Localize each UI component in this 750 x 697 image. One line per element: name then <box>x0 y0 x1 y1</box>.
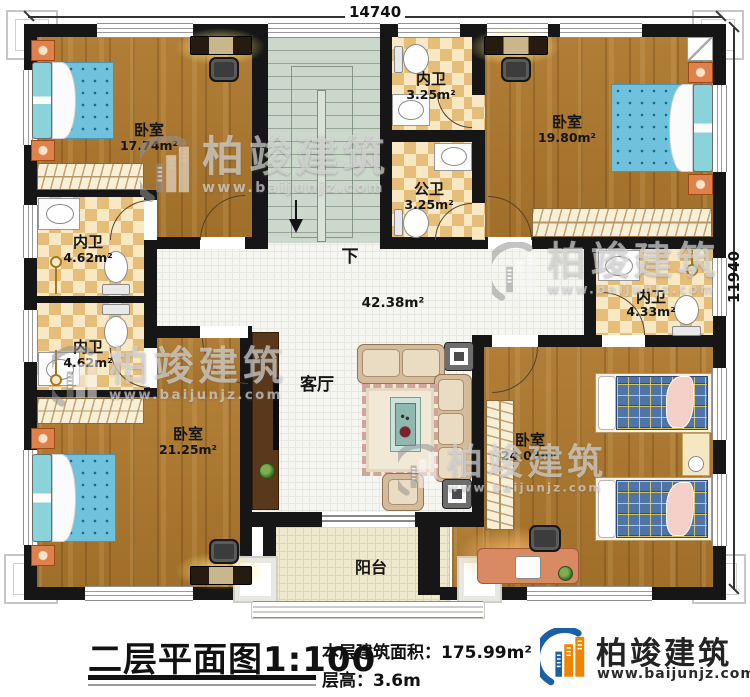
window <box>398 23 460 38</box>
wall-hall-bottom-left <box>252 512 322 527</box>
window <box>712 474 727 546</box>
stair-down-label: 下 <box>342 242 359 267</box>
building-area-value: 175.99m² <box>441 643 532 663</box>
closet-bedroom-bl <box>37 398 144 424</box>
bed-headboard <box>32 454 52 542</box>
window <box>712 85 727 172</box>
desk-plant <box>558 566 573 581</box>
dimension-right-value: 11940 <box>725 245 743 309</box>
wall-h <box>472 335 492 347</box>
shower-corner <box>687 37 713 61</box>
desk <box>190 566 252 585</box>
wall-bath-divider <box>392 130 472 142</box>
wall-h <box>24 390 144 397</box>
building-area-label: 本层建筑面积： <box>322 643 441 663</box>
desk-chair <box>529 525 561 552</box>
desk <box>190 36 252 55</box>
room-label: 内卫 <box>416 68 446 89</box>
wall-bedroom-br-left <box>472 347 484 527</box>
door-gap <box>602 335 645 347</box>
desk-chair <box>209 57 239 82</box>
dimension-line-right <box>733 28 735 590</box>
sink-basin <box>398 100 424 120</box>
brand-logo-icon <box>540 628 590 690</box>
stair-center-rail <box>317 90 326 242</box>
wall-h <box>245 237 252 249</box>
desk-chair <box>209 539 239 564</box>
wall-balcony-right-stub <box>418 527 440 595</box>
room-area: 24.08m² <box>501 448 559 463</box>
room-label: 内卫 <box>73 336 103 357</box>
end-table <box>444 342 474 371</box>
shower-hose <box>691 250 693 266</box>
room-label: 内卫 <box>73 231 103 252</box>
wall-h <box>532 237 713 249</box>
brand-url: www.baijunjz.com <box>597 666 750 682</box>
plant <box>259 463 275 479</box>
nightstand <box>688 174 713 195</box>
nightstand-lamp <box>688 456 704 472</box>
title-underline-thin <box>88 684 316 686</box>
building-area-line: 本层建筑面积：175.99m² <box>322 638 532 663</box>
bed-sheet <box>669 84 693 172</box>
sofa-cushion <box>362 349 400 377</box>
wall-h <box>645 335 713 347</box>
sink-basin <box>605 256 633 276</box>
balcony-slider-track <box>322 515 415 517</box>
bed-headboard <box>32 62 52 139</box>
window <box>560 23 642 38</box>
window <box>23 205 38 258</box>
window <box>23 310 38 362</box>
closet-bedroom-tr <box>532 208 712 237</box>
room-label: 卧室 <box>173 423 203 444</box>
floor-height-value: 3.6m <box>373 671 421 691</box>
nightstand <box>31 40 55 61</box>
floor-height-line: 层高：3.6m <box>322 666 421 691</box>
wall-bath-r-left <box>584 249 596 347</box>
title-underline-thick <box>88 675 316 680</box>
toilet-bowl <box>674 295 699 325</box>
room-label: 卧室 <box>134 119 164 140</box>
toilet-tank <box>394 46 403 73</box>
room-area: 19.80m² <box>538 130 596 145</box>
wall-h <box>24 190 144 197</box>
door-gap <box>200 326 248 338</box>
room-label-living: 客厅 <box>300 370 334 395</box>
twin-bed-blanket <box>616 480 708 538</box>
stair-arrow-stem <box>295 200 297 220</box>
shower-fixture <box>50 256 62 268</box>
nightstand <box>688 62 713 83</box>
room-area: 4.62m² <box>63 250 112 265</box>
sofa-cushion <box>438 413 464 445</box>
floor-height-label: 层高： <box>322 671 373 691</box>
nightstand <box>31 140 55 161</box>
bed-pillow <box>598 376 616 430</box>
window <box>527 586 652 601</box>
desk-chair <box>501 57 531 82</box>
bed-pillow <box>598 480 616 538</box>
closet-bedroom-tl <box>37 163 144 190</box>
sink-basin <box>441 147 467 166</box>
room-area: 3.25m² <box>406 87 455 102</box>
nightstand <box>31 545 55 566</box>
coffee-table-top <box>395 403 416 446</box>
window <box>268 23 380 38</box>
room-label: 卧室 <box>552 111 582 132</box>
toilet-bowl <box>403 208 429 238</box>
sofa-cushion <box>388 479 418 505</box>
room-area: 17.74m² <box>120 138 178 153</box>
wall-h <box>144 326 200 338</box>
wall-h <box>24 296 144 303</box>
floor-plan-page: 14740 11940 <box>0 0 750 697</box>
end-table <box>442 479 472 509</box>
window <box>712 258 727 316</box>
bed-headboard <box>693 84 713 172</box>
window <box>712 368 727 440</box>
toilet-tank <box>672 326 701 336</box>
door-gap <box>472 203 485 240</box>
room-area: 4.33m² <box>626 304 675 319</box>
door-gap <box>492 335 538 347</box>
shower-hose <box>55 350 57 374</box>
closet-bedroom-br <box>486 400 514 530</box>
desk <box>484 36 548 55</box>
dimension-top-value: 14740 <box>345 3 405 21</box>
nightstand <box>31 428 55 449</box>
room-area: 21.25m² <box>159 442 217 457</box>
room-label: 公卫 <box>414 178 444 199</box>
sink-basin <box>46 204 74 224</box>
toilet-tank <box>102 284 130 295</box>
toilet-tank <box>102 304 130 315</box>
wall-stair-right <box>380 24 392 249</box>
toilet-bowl <box>104 316 128 348</box>
brand-logo: 柏竣建筑 www.baijunjz.com <box>540 626 745 692</box>
sofa-cushion <box>438 447 464 479</box>
balcony-slider-track <box>322 520 415 522</box>
room-label: 卧室 <box>515 429 545 450</box>
laptop <box>515 556 541 579</box>
shower-fixture <box>50 374 62 386</box>
wall-hall-bottom-right <box>415 512 482 527</box>
twin-bed-blanket <box>616 376 708 430</box>
balcony-railing <box>253 601 483 618</box>
room-area-hall: 42.38m² <box>362 295 425 311</box>
room-area: 3.25m² <box>404 197 453 212</box>
room-label-balcony: 阳台 <box>355 554 387 578</box>
folded-blanket <box>666 482 694 536</box>
room-area: 4.62m² <box>63 355 112 370</box>
sofa-cushion <box>402 349 440 377</box>
shower-hose <box>55 268 57 294</box>
sofa-cushion <box>438 379 464 411</box>
door-gap <box>472 95 485 130</box>
stair-arrow-head <box>289 219 303 233</box>
toilet-tank <box>394 209 403 236</box>
folded-blanket <box>666 376 694 428</box>
tv <box>273 377 279 450</box>
